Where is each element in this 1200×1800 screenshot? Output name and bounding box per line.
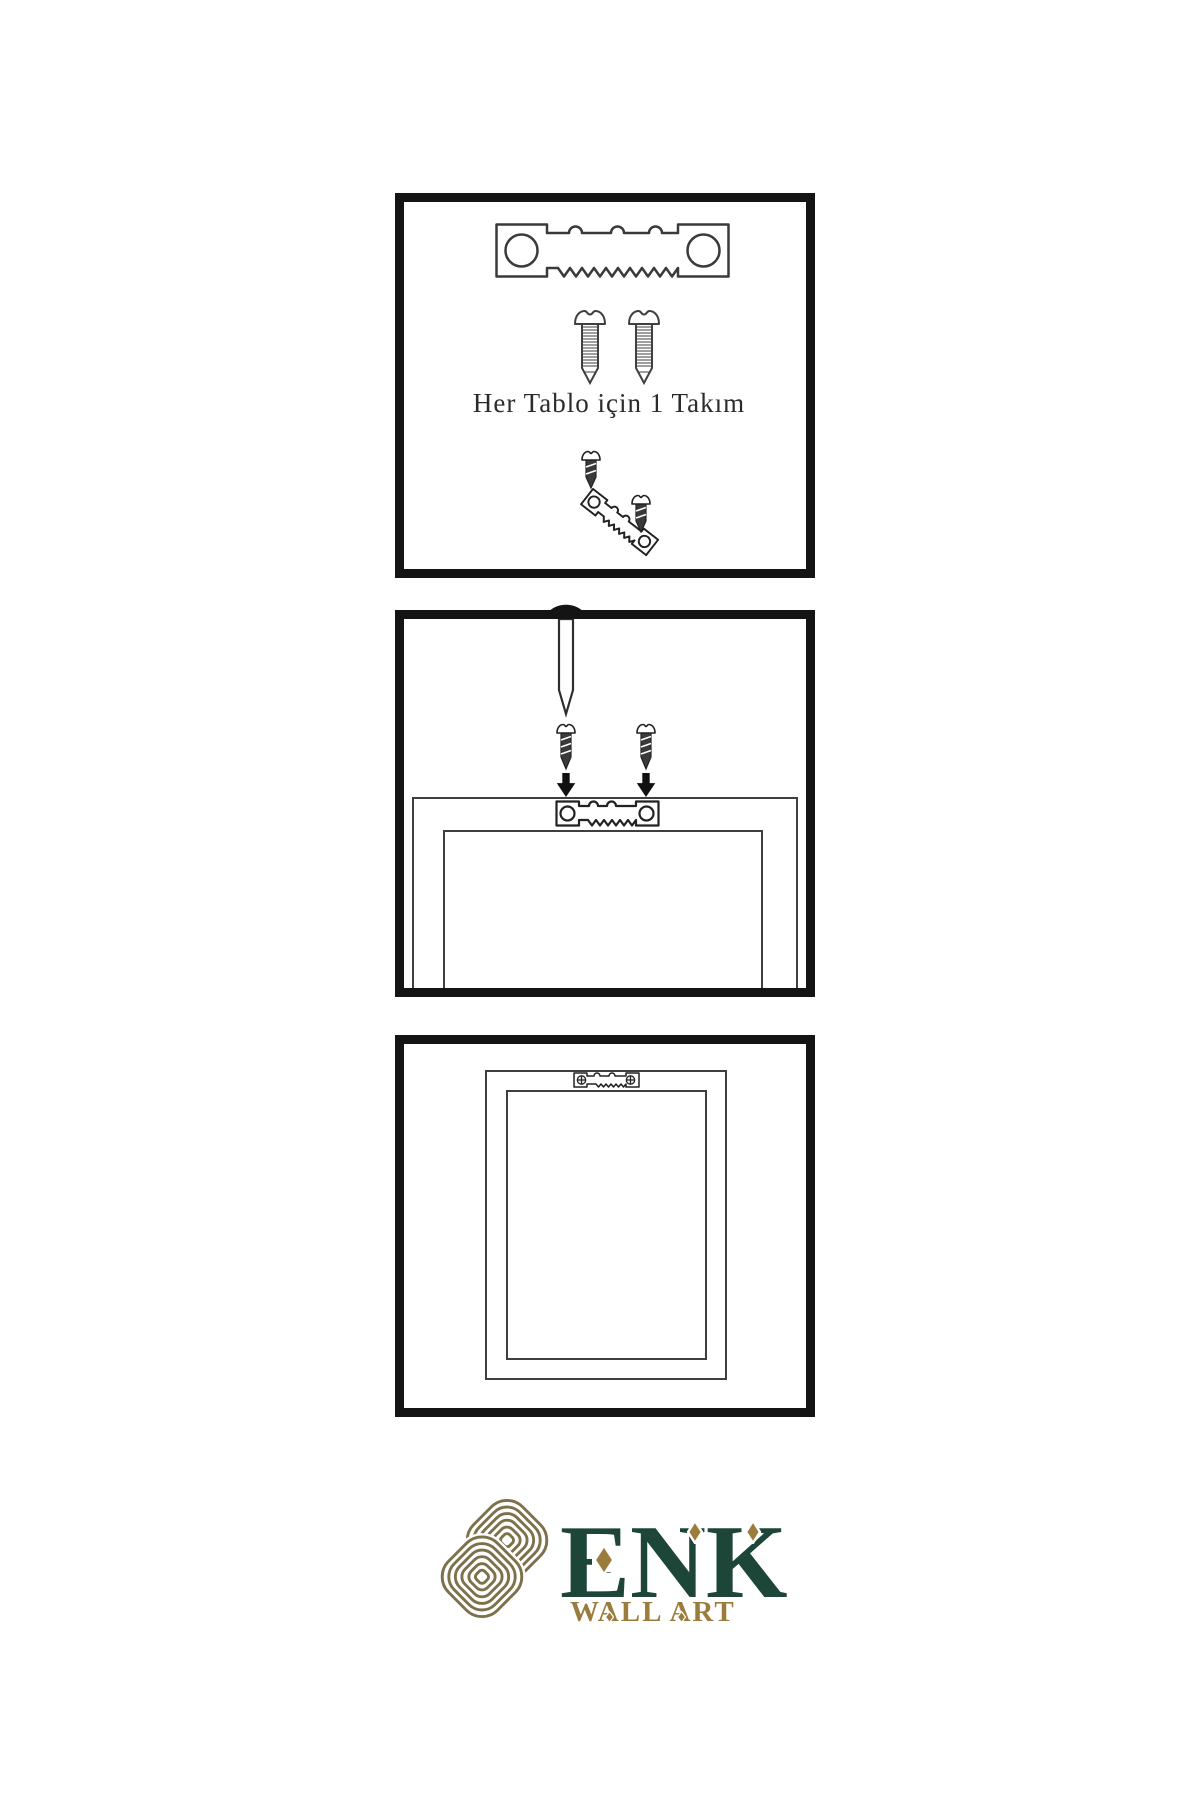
screw-icon <box>580 450 602 490</box>
diamond-ornament <box>677 1611 686 1623</box>
arrow-down-icon <box>636 773 656 797</box>
sawtooth-hanger-icon <box>495 223 730 278</box>
panel-hanging-kit: Her Tablo için 1 Takım <box>395 193 815 578</box>
screw-icon <box>555 723 577 771</box>
kit-caption: Her Tablo için 1 Takım <box>412 388 806 419</box>
knot-lobe-bottom-left <box>433 1528 531 1626</box>
diamond-ornament <box>605 1611 614 1623</box>
screw-icon <box>573 308 607 386</box>
panel-hung-frame <box>395 1035 815 1417</box>
sawtooth-hanger-icon <box>573 1072 640 1088</box>
diamond-ornament <box>687 1520 703 1544</box>
screw-icon <box>630 494 652 534</box>
brand-tagline: WALL ART <box>570 1598 736 1627</box>
screw-icon <box>627 308 661 386</box>
diamond-ornament <box>594 1545 614 1575</box>
panel-install-hanger <box>395 610 815 997</box>
frame-back-inner <box>443 830 763 997</box>
hung-frame-inner <box>506 1090 707 1360</box>
knot-logo <box>432 1490 557 1627</box>
screw-icon <box>635 723 657 771</box>
arrow-down-icon <box>556 773 576 797</box>
product-info-sheet: { "canvas": { "bg": "#ffffff", "border":… <box>0 0 1200 1800</box>
diamond-ornament <box>745 1520 761 1544</box>
sawtooth-hanger-icon <box>555 800 660 827</box>
nail-icon <box>543 604 589 718</box>
